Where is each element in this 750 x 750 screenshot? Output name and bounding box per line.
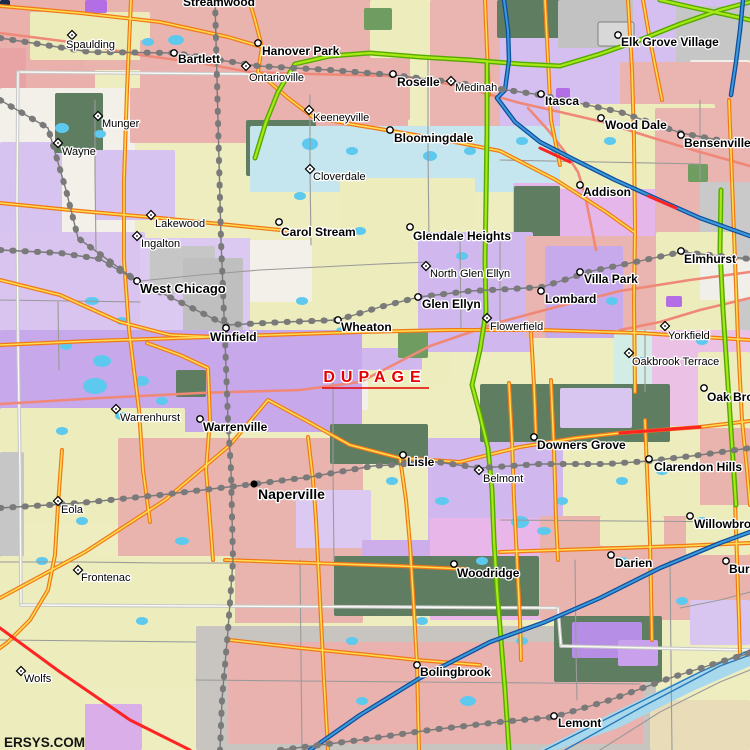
watermark-text: ERSYS.COM — [4, 735, 85, 750]
county-name-label: DUPAGE — [323, 369, 426, 386]
map-canvas: StreamwoodSpauldingBartlettHanover ParkO… — [0, 0, 750, 750]
map-labels-layer: DUPAGE ERSYS.COM — [0, 0, 750, 750]
